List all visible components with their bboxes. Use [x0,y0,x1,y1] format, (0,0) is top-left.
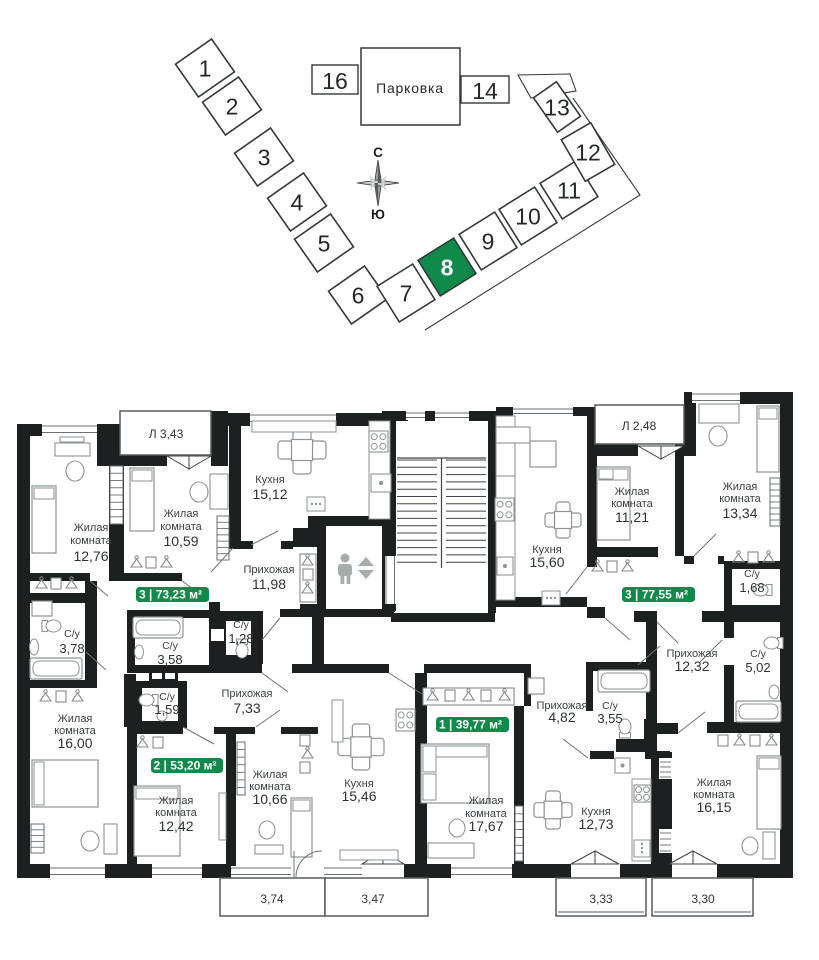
svg-text:С/у: С/у [750,648,767,660]
svg-text:10: 10 [515,203,541,229]
svg-text:С/у: С/у [744,568,761,580]
svg-text:2: 2 [226,93,239,119]
svg-text:4: 4 [291,189,304,215]
svg-text:3 | 77,55 м²: 3 | 77,55 м² [625,588,688,602]
svg-text:16,00: 16,00 [57,735,92,751]
svg-text:Кухня: Кухня [255,474,284,486]
svg-text:3,30: 3,30 [691,892,715,906]
svg-text:11,21: 11,21 [615,509,649,525]
svg-text:1,28: 1,28 [228,631,253,646]
svg-text:1,68: 1,68 [739,580,764,595]
svg-text:3: 3 [258,144,271,170]
svg-text:11: 11 [557,177,581,203]
svg-text:12,76: 12,76 [73,548,108,564]
svg-text:15,60: 15,60 [529,554,564,570]
svg-text:Ю: Ю [371,207,385,222]
svg-text:4,82: 4,82 [548,709,575,725]
svg-text:Жилая: Жилая [159,795,194,807]
svg-text:3,58: 3,58 [157,652,182,667]
svg-text:12: 12 [575,139,601,165]
svg-text:Жилая: Жилая [74,522,109,534]
svg-text:Жилая: Жилая [723,481,758,493]
svg-text:Жилая: Жилая [164,508,199,520]
svg-text:Л 2,48: Л 2,48 [622,419,657,433]
svg-text:Прихожая: Прихожая [244,564,295,576]
svg-text:Л 3,43: Л 3,43 [149,427,184,441]
svg-text:3,33: 3,33 [589,892,613,906]
svg-text:5: 5 [318,230,331,256]
svg-text:16: 16 [322,68,348,94]
svg-text:Жилая: Жилая [615,486,650,498]
svg-text:Жилая: Жилая [253,769,288,781]
svg-text:3 | 73,23 м²: 3 | 73,23 м² [139,588,202,602]
svg-text:3,55: 3,55 [597,711,622,726]
svg-text:2 | 53,20 м²: 2 | 53,20 м² [154,759,217,773]
svg-text:16,15: 16,15 [696,799,731,815]
svg-text:14: 14 [472,78,498,104]
svg-text:комната: комната [719,493,761,505]
svg-text:5,02: 5,02 [745,660,770,675]
svg-text:6: 6 [352,282,365,308]
svg-text:13,34: 13,34 [722,505,757,521]
svg-text:С: С [373,145,383,160]
svg-text:С/у: С/у [64,628,81,640]
svg-text:С/у: С/у [233,619,250,631]
svg-text:3,78: 3,78 [59,641,84,656]
svg-text:9: 9 [482,228,495,254]
svg-text:Парковка: Парковка [376,80,444,96]
svg-text:12,73: 12,73 [578,816,613,832]
svg-text:7,33: 7,33 [233,700,260,716]
svg-text:8: 8 [441,254,454,280]
svg-text:1 | 39,77 м²: 1 | 39,77 м² [439,718,502,732]
svg-text:С/у: С/у [162,640,179,652]
svg-text:Жилая: Жилая [469,795,504,807]
svg-text:3,47: 3,47 [361,892,385,906]
svg-text:комната: комната [160,521,202,533]
svg-text:15,46: 15,46 [341,788,376,804]
svg-text:комната: комната [70,535,112,547]
svg-text:3,74: 3,74 [260,892,284,906]
svg-text:13: 13 [544,94,570,120]
svg-text:10,59: 10,59 [163,533,198,549]
svg-text:12,42: 12,42 [158,818,193,834]
svg-text:11,98: 11,98 [252,576,286,592]
svg-text:Жилая: Жилая [58,713,93,725]
svg-text:7: 7 [400,280,413,306]
svg-text:Жилая: Жилая [697,777,732,789]
svg-text:1,59: 1,59 [154,702,179,717]
svg-text:17,67: 17,67 [468,818,503,834]
svg-text:15,12: 15,12 [252,486,287,502]
svg-text:10,66: 10,66 [252,791,287,807]
svg-text:Прихожая: Прихожая [222,688,273,700]
svg-text:12,32: 12,32 [674,658,709,674]
svg-text:1: 1 [199,55,212,81]
